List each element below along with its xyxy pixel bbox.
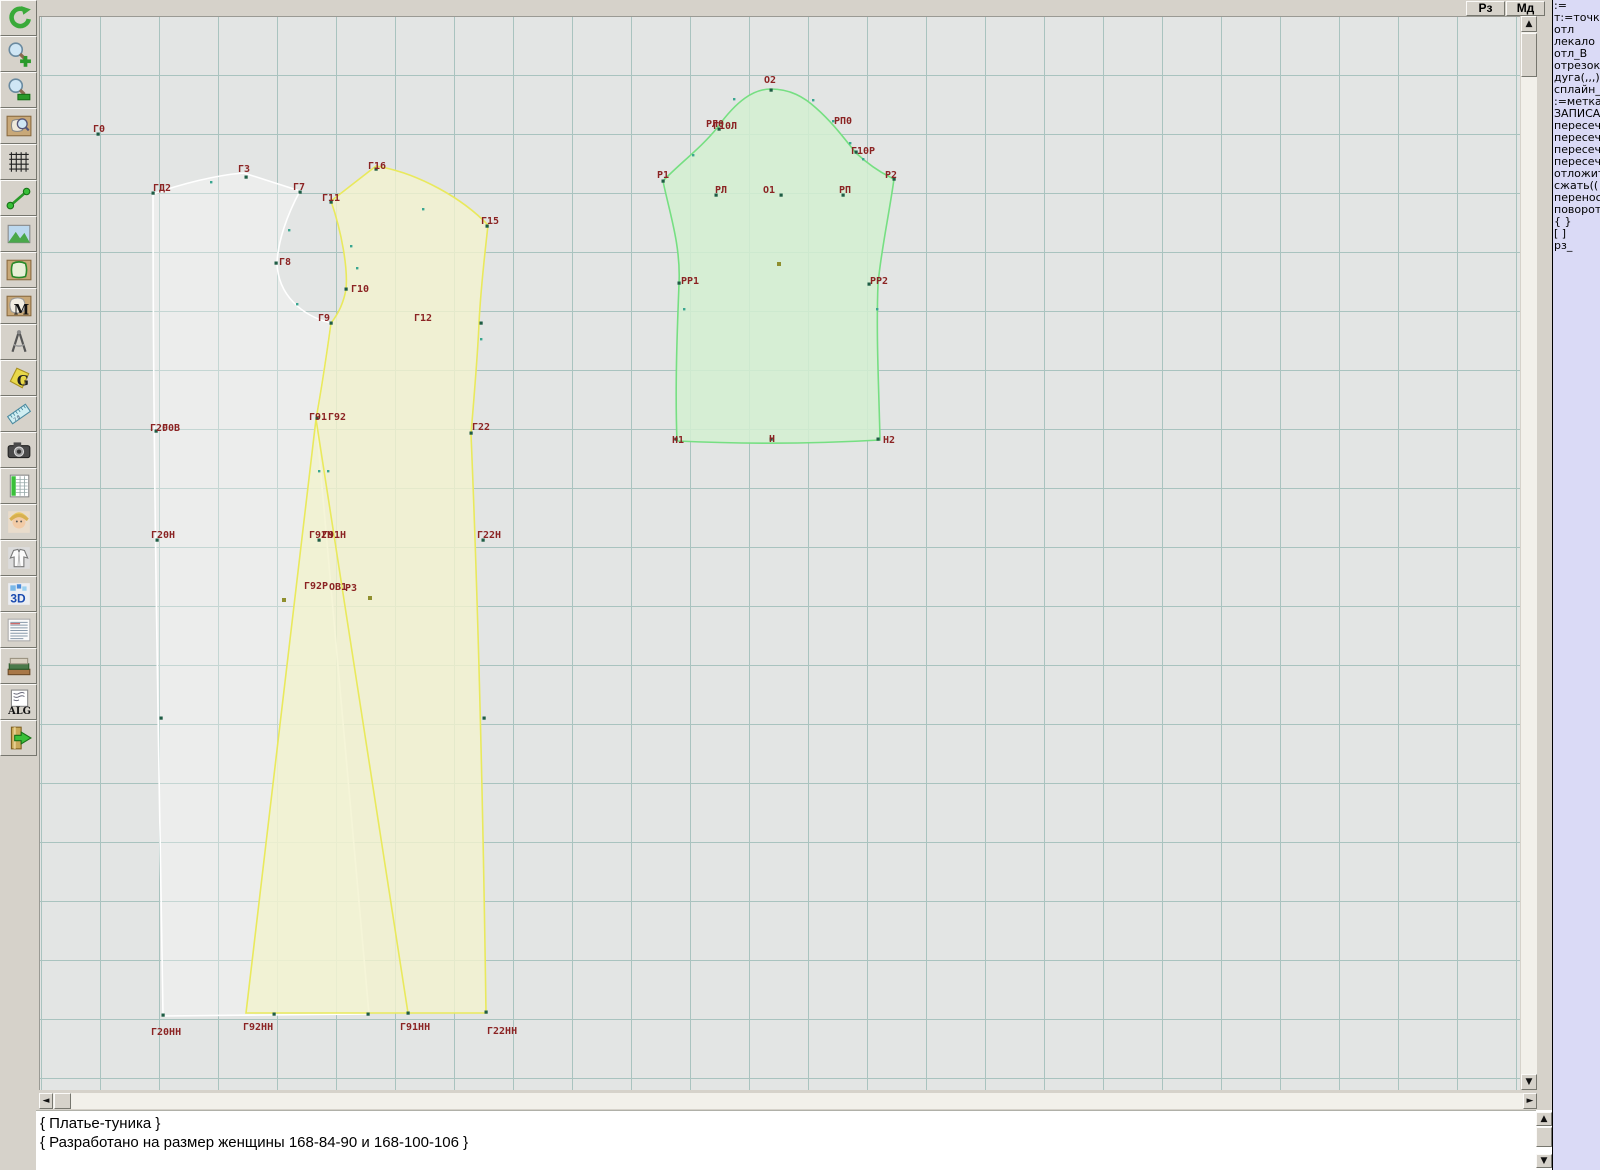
text-list-icon [6,617,32,643]
curve-tick [210,181,212,183]
point-label: Г91 [309,412,327,423]
point-label: Р1 [657,170,669,181]
exit-icon [6,725,32,751]
command-item[interactable]: сплайн_ [1553,84,1600,96]
point-label: Г22 [472,422,490,433]
curve-tick [327,470,329,472]
toolbar-books-button[interactable] [0,648,37,684]
construction-point[interactable] [245,176,248,179]
svg-text:G: G [16,374,28,390]
point-label: О2 [764,75,776,86]
toolbar-refresh-button[interactable] [0,0,37,36]
curve-tick [480,338,482,340]
point-label: Г3 [238,164,250,175]
construction-point[interactable] [407,1012,410,1015]
toolbar-model-button[interactable] [0,504,37,540]
model-photo-icon [6,509,32,535]
point-label: Р2 [885,170,897,181]
reference-dot [368,596,372,600]
toolbar-image-button[interactable] [0,216,37,252]
command-item[interactable]: пересеч [1553,132,1600,144]
curve-tick [862,158,864,160]
point-label: Г22НН [487,1026,517,1037]
point-label: Н1 [672,435,684,446]
curve-tick [350,245,352,247]
command-item[interactable]: := [1553,0,1600,12]
point-label: Н [769,434,775,445]
curve-tick [318,470,320,472]
point-label: Г12 [414,313,432,324]
console-line: { Разработано на размер женщины 168-84-9… [40,1133,1536,1152]
point-label: Г0 [93,124,105,135]
drawing-canvas[interactable]: Г0ГД2Г3Г7Г16Г11Г15Г8Г10Г9Г12Г20Г0ВГ91Г92… [39,16,1520,1090]
sleeve-piece[interactable] [663,89,894,443]
3d-icon: 3D [6,581,32,607]
command-item[interactable]: [ ] [1553,228,1600,240]
pattern-piece-icon [6,257,32,283]
point-label: Г22Н [477,530,501,541]
point-label: Г20НН [151,1027,181,1038]
point-label: Г0В [162,423,180,434]
command-item[interactable]: пересеч [1553,144,1600,156]
command-item[interactable]: дуга(,,,) [1553,72,1600,84]
curve-tick [876,308,878,310]
command-item[interactable]: { } [1553,216,1600,228]
construction-point[interactable] [273,1013,276,1016]
construction-point[interactable] [485,1011,488,1014]
point-label: Г92Р [304,581,328,592]
canvas-vertical-scrollbar[interactable]: ▲ ▼ [1521,16,1537,1090]
command-item[interactable]: лекало [1553,36,1600,48]
point-label: Н2 [883,435,895,446]
point-label: Г20Н [151,530,175,541]
program-console[interactable]: { Платье-туника } { Разработано на разме… [36,1110,1536,1170]
point-label: Г8 [279,257,291,268]
garment-icon [6,545,32,571]
vertical-scroll-thumb[interactable] [1521,33,1537,77]
command-item[interactable]: т:=точка [1553,12,1600,24]
console-scrollbar[interactable]: ▲ ▼ [1536,1110,1552,1170]
construction-point[interactable] [162,1014,165,1017]
curve-tick [288,229,290,231]
point-label: РП [839,185,851,196]
curve-tick [356,267,358,269]
point-label: О1 [763,185,775,196]
console-scroll-up-icon[interactable]: ▲ [1536,1112,1552,1126]
toolbar-camera-button[interactable] [0,432,37,468]
point-label: Г91НН [400,1022,430,1033]
command-panel: :=т:=точкаотллекалоотл_Вотрезокдуга(,,,)… [1552,0,1600,1170]
curve-tick [422,208,424,210]
construction-point[interactable] [275,262,278,265]
toolbar-alg-button[interactable]: ALG [0,684,37,720]
toolbar-zoom-out-button[interactable] [0,72,37,108]
ruler-icon: 7 8 [6,401,32,427]
command-item[interactable]: отл_В [1553,48,1600,60]
construction-point[interactable] [770,89,773,92]
toolbar-ruler-button[interactable]: 7 8 [0,396,37,432]
scroll-right-icon[interactable]: ► [1523,1093,1537,1109]
camera-icon [6,437,32,463]
svg-text:M: M [13,303,29,319]
point-label: РР1 [681,276,699,287]
toolbar-zoom-piece-button[interactable] [0,108,37,144]
point-label: Г91Н [322,530,346,541]
console-scroll-down-icon[interactable]: ▼ [1536,1154,1552,1168]
pattern-drawing: Г0ГД2Г3Г7Г16Г11Г15Г8Г10Г9Г12Г20Г0ВГ91Г92… [40,17,1521,1091]
command-list: :=т:=точкаотллекалоотл_Вотрезокдуга(,,,)… [1553,0,1600,252]
command-item[interactable]: отл [1553,24,1600,36]
reference-dot [777,262,781,266]
command-item[interactable]: рз_ [1553,240,1600,252]
point-label: Г10Л [713,121,737,132]
svg-text:3D: 3D [10,592,26,606]
command-item[interactable]: перенос [1553,192,1600,204]
point-label: Г92 [328,412,346,423]
curve-tick [296,303,298,305]
compass-icon [6,329,32,355]
table-icon [6,473,32,499]
console-line: { Платье-туника } [40,1114,1536,1133]
toolbar-piece-button[interactable] [0,252,37,288]
command-item[interactable]: отложит [1553,168,1600,180]
point-label: РП0 [834,116,852,127]
curve-tick [683,308,685,310]
point-label: ГД2 [153,183,171,194]
scroll-left-icon[interactable]: ◄ [39,1093,53,1109]
books-icon [6,653,32,679]
alg-icon: ALG [6,689,32,715]
command-item[interactable]: сжать(( [1553,180,1600,192]
toolbar-grid-button[interactable] [0,144,37,180]
pattern-m-icon: M [6,293,32,319]
point-label: Г92НН [243,1022,273,1033]
toolbar-segment-button[interactable] [0,180,37,216]
zoom-out-icon [6,77,32,103]
point-label: Р3 [345,583,357,594]
toolbar-threed-button[interactable]: 3D [0,576,37,612]
grid-icon [6,149,32,175]
toolbar-text-list-button[interactable] [0,612,37,648]
point-label: Г10Р [851,146,875,157]
toolbar-garment-button[interactable] [0,540,37,576]
refresh-icon [6,5,32,31]
command-item[interactable]: ЗАПИСА [1553,108,1600,120]
curve-tick [812,99,814,101]
command-item[interactable]: пересеч [1553,156,1600,168]
toolbar-piece-m-button[interactable]: M [0,288,37,324]
point-label: Г10 [351,284,369,295]
command-item[interactable]: поворот [1553,204,1600,216]
point-label: РР2 [870,276,888,287]
app-window: { "top_buttons": [ { "label": "Рз" }, { … [0,0,1600,1170]
construction-point[interactable] [780,194,783,197]
image-icon [6,221,32,247]
construction-point[interactable] [345,288,348,291]
point-label: РЛ [715,185,727,196]
scroll-down-icon[interactable]: ▼ [1521,1074,1537,1090]
command-item[interactable]: пересеч [1553,120,1600,132]
segment-icon [6,185,32,211]
toolbar-table-button[interactable] [0,468,37,504]
construction-point[interactable] [367,1013,370,1016]
reference-dot [282,598,286,602]
pattern-g-icon: G [6,365,32,391]
rz-button[interactable]: Рз [1466,1,1505,16]
toolbar-compass-button[interactable] [0,324,37,360]
point-label: Г11 [322,193,340,204]
zoom-piece-icon [6,113,32,139]
scroll-up-icon[interactable]: ▲ [1521,16,1537,32]
curve-tick [733,98,735,100]
command-item[interactable]: отрезок [1553,60,1600,72]
construction-point[interactable] [160,717,163,720]
console-scroll-thumb[interactable] [1536,1127,1552,1147]
horizontal-scroll-thumb[interactable] [54,1093,71,1109]
construction-point[interactable] [480,322,483,325]
point-label: Г16 [368,161,386,172]
curve-tick [849,142,851,144]
toolbar-exit-button[interactable] [0,720,37,756]
construction-point[interactable] [483,717,486,720]
toolbar-zoom-in-button[interactable] [0,36,37,72]
point-label: Г7 [293,182,305,193]
svg-text:ALG: ALG [7,706,31,715]
construction-point[interactable] [877,438,880,441]
point-label: Г9 [318,313,330,324]
point-label: Г15 [481,216,499,227]
canvas-horizontal-scrollbar[interactable]: ◄ ► [39,1093,1537,1109]
md-button[interactable]: Мд [1506,1,1545,16]
zoom-in-icon [6,41,32,67]
curve-tick [692,154,694,156]
toolbar-piece-g-button[interactable]: G [0,360,37,396]
toolbar: MG7 83DALG [0,0,38,756]
command-item[interactable]: :=метка [1553,96,1600,108]
